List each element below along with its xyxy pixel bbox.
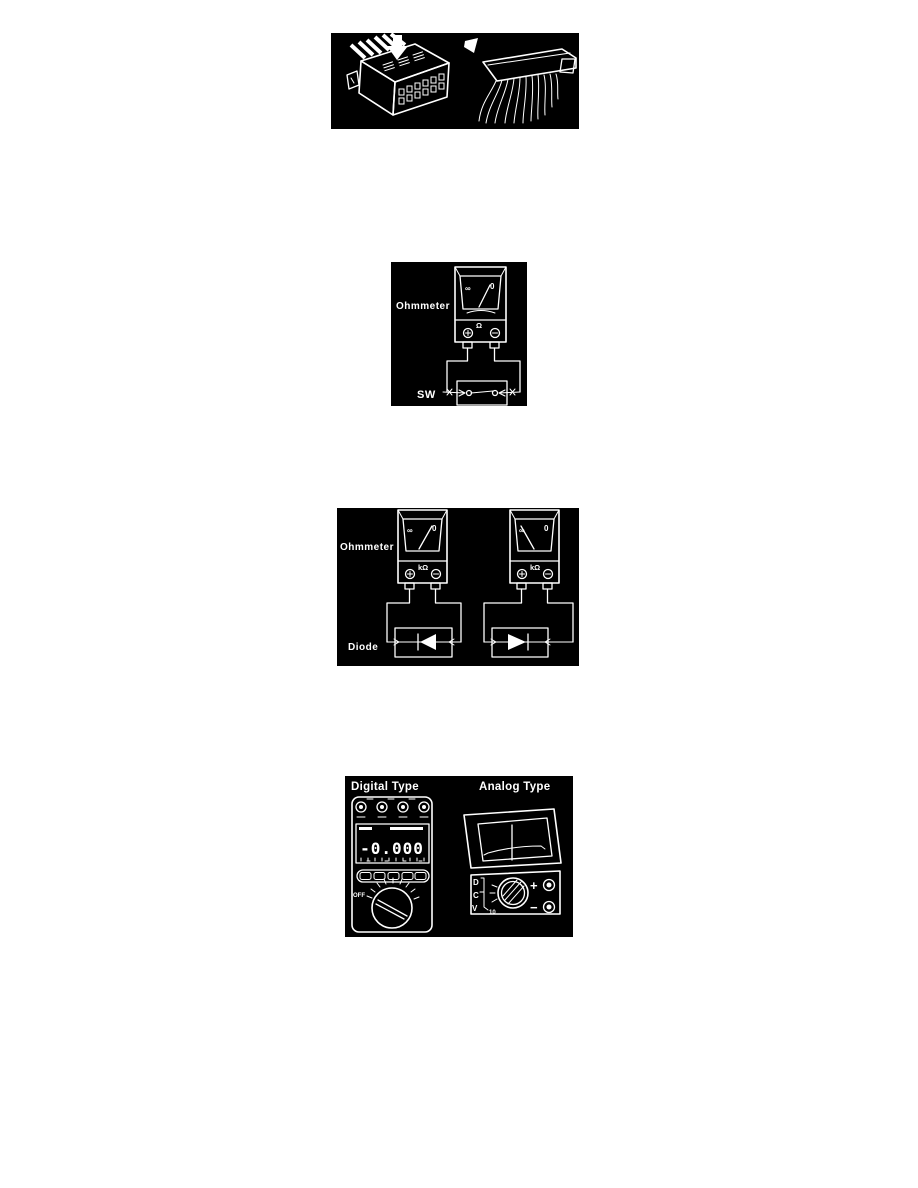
scale-zero: 0 [544, 524, 549, 533]
range-dial [490, 878, 528, 908]
ohmmeter-reverse: ∞ 0 kΩ [510, 510, 559, 589]
dial-letter-v: V [472, 904, 478, 913]
harness-wires [479, 74, 558, 123]
meter-needle [479, 285, 490, 307]
ohmmeter-label: Ohmmeter [396, 301, 450, 312]
plus-terminal-icon [464, 329, 473, 338]
digital-multimeter: -0.000 OFF [352, 797, 432, 932]
figure-ohmmeter-switch: ∞ 0 Ω Ohmmeter [391, 262, 527, 406]
scale-infinity: ∞ [407, 526, 413, 535]
ohmmeter-switch-drawing: ∞ 0 Ω Ohmmeter [391, 262, 527, 406]
plus-terminal-icon [544, 880, 555, 891]
digital-type-title: Digital Type [351, 781, 419, 793]
ohmmeter-forward: ∞ 0 kΩ [398, 510, 447, 589]
analog-type-title: Analog Type [479, 781, 550, 793]
probe-arrow-left-icon [443, 389, 465, 396]
ohmmeter-diode-drawing: ∞ 0 kΩ ∞ [337, 508, 579, 666]
diode-triangle-left-icon [420, 634, 436, 650]
figure-ohmmeter-diode: ∞ 0 kΩ ∞ [337, 508, 579, 666]
analog-multimeter: D C V 10 + − [464, 809, 561, 916]
connector-block [347, 34, 449, 115]
connector-views-drawing [331, 33, 579, 129]
diode-triangle-right-icon [508, 634, 526, 650]
unit-label: Ω [476, 321, 482, 330]
wedge-arrow-icon [464, 38, 478, 53]
minus-terminal-icon [491, 329, 500, 338]
terminal-slots [383, 52, 424, 71]
figure-connector-views [331, 33, 579, 129]
scale-zero: 0 [432, 524, 437, 533]
unit-label: kΩ [530, 563, 540, 572]
plus-terminal-icon [518, 570, 527, 579]
dial-pointer [376, 900, 407, 919]
minus-terminal-icon [432, 570, 441, 579]
switch-label: SW [417, 389, 436, 401]
switch-assembly [443, 381, 520, 405]
minus-terminal-icon [544, 902, 555, 913]
down-arrow-icon [387, 35, 408, 60]
plus-terminal-icon [406, 570, 415, 579]
test-leads-left [387, 589, 461, 642]
dial-letter-c: C [473, 891, 479, 900]
dial-range-value: 10 [489, 910, 496, 916]
dial-letter-d: D [473, 878, 479, 887]
meter-needle [521, 526, 534, 549]
input-jacks [356, 799, 429, 817]
rotary-dial [367, 878, 419, 928]
diode-box-forward [484, 628, 573, 657]
lcd-reading: -0.000 [360, 839, 424, 858]
plus-sign: + [530, 878, 538, 893]
ohmmeter-label: Ohmmeter [340, 542, 394, 553]
manual-page: ∞ 0 Ω Ohmmeter [0, 0, 918, 1188]
meter-needle [419, 526, 432, 549]
ohmmeter: ∞ 0 Ω [455, 267, 506, 348]
harness-connector [464, 38, 576, 123]
unit-label: kΩ [418, 563, 428, 572]
minus-sign: − [530, 900, 538, 915]
diode-label: Diode [348, 642, 378, 653]
scale-zero: 0 [490, 282, 495, 291]
meter-types-drawing: Digital Type Analog Type -0.000 [345, 776, 573, 937]
minus-terminal-icon [544, 570, 553, 579]
dial-off-label: OFF [353, 893, 365, 899]
test-leads [447, 348, 520, 392]
probe-arrow-right-icon [499, 389, 520, 396]
figure-meter-types: Digital Type Analog Type -0.000 [345, 776, 573, 937]
diode-box-reverse [387, 628, 461, 657]
scale-infinity: ∞ [465, 284, 471, 293]
lcd-display: -0.000 [356, 824, 429, 863]
